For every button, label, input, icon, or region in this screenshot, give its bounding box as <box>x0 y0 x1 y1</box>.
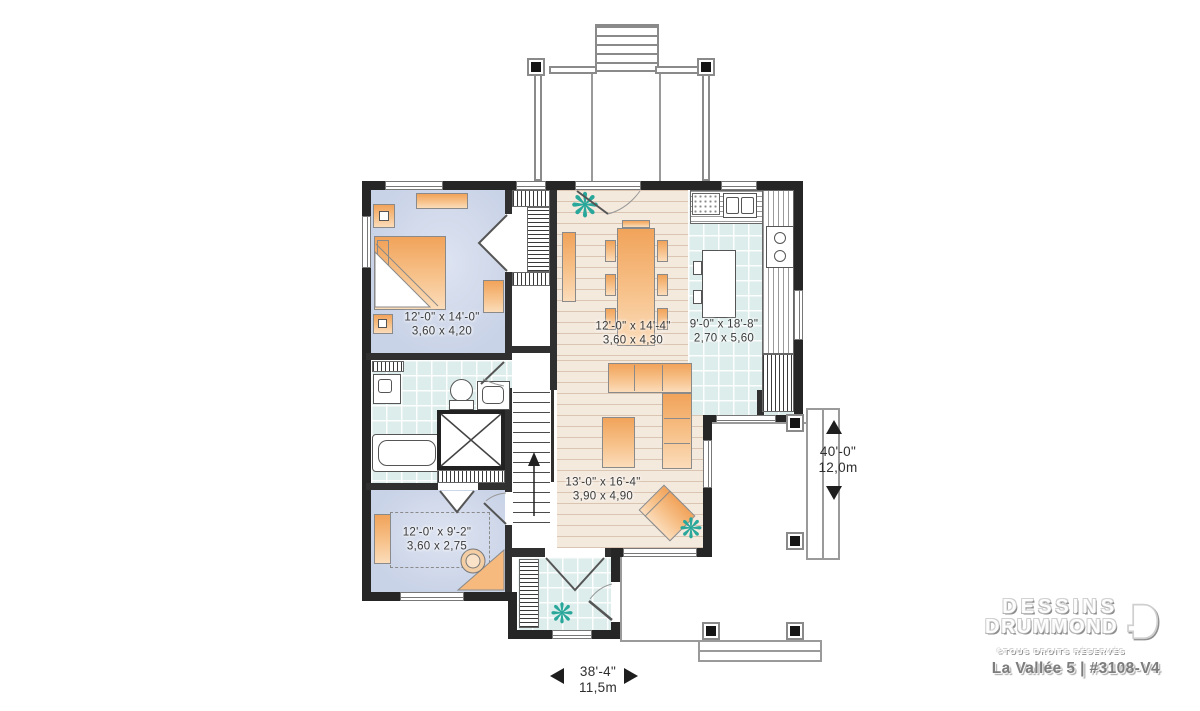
room-label-living-room: 13'-0" x 16'-4" 3,90 x 4,90 <box>565 477 640 504</box>
dimension-arrow-left-icon <box>550 668 564 684</box>
back-porch-railing-right <box>702 74 710 181</box>
linen-closet-icon <box>437 470 505 483</box>
vanity-sink-icon <box>482 386 504 404</box>
laundry-shelf-icon <box>372 361 404 372</box>
toilet-bowl-icon <box>450 379 473 402</box>
closet-shelf-icon <box>512 190 550 207</box>
stool-icon <box>693 290 702 304</box>
kitchen-counter-right <box>762 190 794 354</box>
sofa-icon <box>608 363 692 393</box>
logo-line1: DESSINS <box>985 597 1118 617</box>
logo: DESSINS DRUMMOND <box>985 597 1160 645</box>
shower-icon <box>437 410 505 470</box>
dimension-arrow-up-icon <box>826 420 842 434</box>
closet-shelf-icon <box>512 272 550 286</box>
stair-railing-wall <box>551 390 554 482</box>
overall-depth-imperial: 40'-0" <box>805 444 871 460</box>
closet-rod-icon <box>527 207 550 272</box>
room-dim-metric: 3,60 x 4,30 <box>595 334 670 348</box>
dishwasher-icon <box>692 193 720 215</box>
back-porch-railing-left <box>534 74 542 181</box>
nightstand-lamp-icon <box>378 319 387 328</box>
window-entry-bottom <box>552 630 592 639</box>
wall-bedroom2-top-left <box>366 483 438 490</box>
plan-name-label: La Vallée 5 | #3108-V4 <box>985 660 1160 678</box>
plant-icon: ❋ <box>550 600 573 628</box>
porch-edge-left <box>620 557 622 642</box>
back-porch-post-icon <box>527 58 545 76</box>
room-dim-metric: 3,60 x 4,20 <box>404 325 479 339</box>
porch-post-icon <box>702 622 720 640</box>
room-dim-imperial: 12'-0" x 14'-4" <box>595 321 670 335</box>
room-dim-metric: 3,90 x 4,90 <box>565 490 640 504</box>
dresser-icon <box>416 193 468 209</box>
room-label-bedroom-2: 12'-0" x 9'-2" 3,60 x 2,75 <box>403 527 472 554</box>
wardrobe-icon <box>374 514 391 564</box>
wall-entry-top-left <box>508 548 545 557</box>
room-dim-metric: 3,60 x 2,75 <box>403 540 472 554</box>
sofa-cushion-divider <box>664 443 690 444</box>
room-label-master-bedroom: 12'-0" x 14'-0" 3,60 x 4,20 <box>404 312 479 339</box>
logo-line2: DRUMMOND <box>985 617 1118 637</box>
window-master-left <box>362 216 371 268</box>
branding-block: DESSINS DRUMMOND ©TOUS DROITS RÉSERVÉS L… <box>985 597 1160 678</box>
nightstand-lamp-icon <box>379 211 389 221</box>
sink-bowl-icon <box>741 197 754 214</box>
dimension-arrow-right-icon <box>624 668 638 684</box>
wall-bedroom2-east-lower <box>505 525 512 592</box>
chair-icon <box>657 240 668 262</box>
chair-icon <box>657 274 668 296</box>
bed-pillow-icon <box>377 240 389 306</box>
overall-width-metric: 11,5m <box>568 680 628 696</box>
overall-width-imperial: 38'-4" <box>568 664 628 680</box>
tall-dresser-icon <box>483 280 504 313</box>
room-dim-imperial: 13'-0" x 16'-4" <box>565 477 640 491</box>
window-kitchen-right <box>794 290 803 340</box>
wall-master-bottom <box>366 353 512 360</box>
back-porch-railing-top-right <box>655 66 703 74</box>
window-living-bottom <box>623 548 697 557</box>
burner-icon <box>774 232 786 244</box>
bathtub-basin-icon <box>378 440 436 466</box>
wall-closet-bottom <box>505 346 557 353</box>
porch-post-icon <box>786 414 804 432</box>
sofa-chaise-icon <box>662 393 692 469</box>
dimension-arrow-down-icon <box>826 486 842 500</box>
window-kitchen-top <box>721 181 757 190</box>
room-label-dining-room: 12'-0" x 14'-4" 3,60 x 4,30 <box>595 321 670 348</box>
wall-closet-dining <box>550 190 557 390</box>
coat-closet-icon <box>519 559 539 628</box>
sofa-cushion-divider <box>634 365 635 391</box>
logo-text: DESSINS DRUMMOND <box>985 597 1118 637</box>
overall-width-label: 38'-4" 11,5m <box>568 664 628 696</box>
porch-step-line <box>822 410 824 558</box>
back-porch-railing-top-left <box>549 66 597 74</box>
plant-icon: ❋ <box>571 189 600 223</box>
coffee-table-icon <box>602 417 635 468</box>
toilet-tank-icon <box>449 400 474 410</box>
sofa-cushion-divider <box>664 418 690 419</box>
porch-step-line <box>700 650 820 652</box>
window-living-right <box>703 440 712 488</box>
buffet-icon <box>562 232 576 302</box>
pantry-shelves-icon <box>762 354 794 412</box>
chair-icon <box>605 274 616 296</box>
overall-depth-metric: 12,0m <box>805 460 871 476</box>
burner-icon <box>774 250 786 262</box>
copyright-text: ©TOUS DROITS RÉSERVÉS <box>997 647 1160 656</box>
room-dim-metric: 2,70 x 5,60 <box>690 332 759 346</box>
staircase <box>513 392 550 523</box>
wall-entry-top-right <box>605 548 611 557</box>
chair-icon <box>605 240 616 262</box>
overall-depth-label: 40'-0" 12,0m <box>805 444 871 476</box>
plant-icon: ❋ <box>679 515 702 543</box>
wall-bedroom2-east-upper <box>505 483 512 492</box>
porch-post-icon <box>786 622 804 640</box>
exterior-wall-entry-right-lower <box>611 622 620 639</box>
table-leaf-icon <box>622 220 650 228</box>
room-dim-imperial: 12'-0" x 9'-2" <box>403 527 472 541</box>
stool-icon <box>693 261 702 275</box>
wall-master-closet-upper <box>505 190 512 214</box>
back-porch-post-icon <box>697 58 715 76</box>
window-bedroom2-bottom <box>400 592 464 601</box>
room-dim-imperial: 9'-0" x 18'-8" <box>690 319 759 333</box>
room-label-kitchen: 9'-0" x 18'-8" 2,70 x 5,60 <box>690 319 759 346</box>
drummond-d-icon <box>1122 597 1160 645</box>
back-porch-stairs-icon <box>595 24 659 72</box>
back-porch-edge-right <box>659 72 661 182</box>
window-master-top <box>385 181 443 190</box>
kitchen-island-icon <box>702 250 736 318</box>
sofa-cushion-divider <box>662 365 663 391</box>
sink-bowl-icon <box>726 197 739 214</box>
back-porch-edge-left <box>591 72 593 182</box>
room-dim-imperial: 12'-0" x 14'-0" <box>404 312 479 326</box>
laundry-basin-icon <box>378 379 392 393</box>
floor-plan-canvas: ❋ ❋ ❋ <box>0 0 1200 711</box>
porch-post-icon <box>786 532 804 550</box>
window-closet-top <box>516 181 546 190</box>
